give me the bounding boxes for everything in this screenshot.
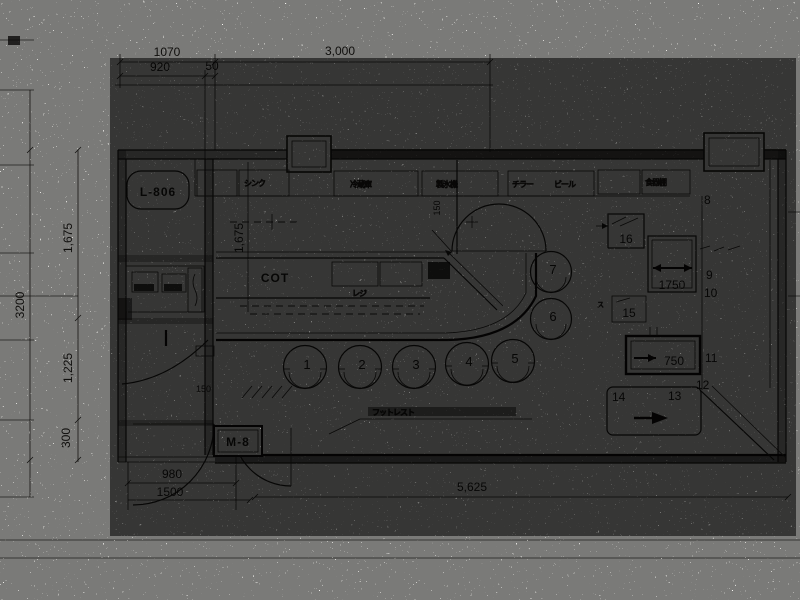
floor-plan-drawing: 1070 3,000 920 50 3200 1,675 1,225 300 9… bbox=[0, 0, 800, 600]
scan-noise-layer-dense bbox=[110, 58, 796, 536]
scanned-floor-plan-sheet: 1070 3,000 920 50 3200 1,675 1,225 300 9… bbox=[0, 0, 800, 600]
